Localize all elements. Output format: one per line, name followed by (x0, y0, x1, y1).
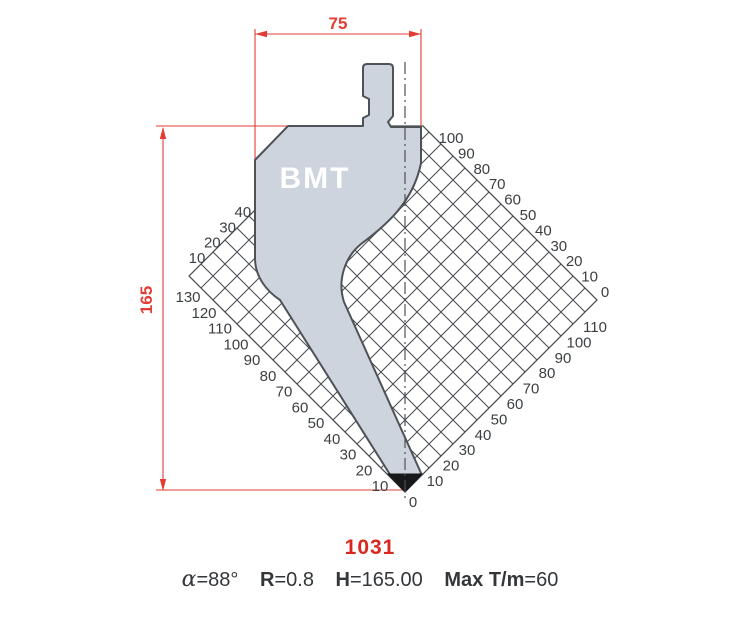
scale-label: 10 (581, 269, 598, 286)
scale-label: 40 (475, 427, 492, 444)
title-block: 1031 α=88° R=0.8 H=165.00 Max T/m=60 (0, 522, 740, 592)
scale-label: 100 (223, 336, 248, 353)
scale-label: 90 (458, 145, 475, 162)
scale-label: 60 (292, 399, 309, 416)
scale-label: 10 (427, 473, 444, 490)
scale-label: 20 (566, 253, 583, 270)
width-dimension-label: 75 (329, 14, 348, 33)
scale-label: 120 (191, 305, 216, 322)
scale-label: 110 (208, 321, 232, 338)
scale-label: 30 (550, 238, 567, 255)
scale-label: 70 (276, 384, 293, 401)
scale-label: 40 (535, 222, 552, 239)
spec-angle: α=88° (182, 569, 239, 591)
scale-label: 90 (555, 350, 572, 367)
scale-label: 90 (244, 352, 261, 369)
scale-label: 10 (189, 250, 206, 267)
scale-label: 50 (520, 207, 537, 224)
brand-label: BMT (280, 162, 351, 195)
punch-drawing-page: BMT 75 165 10203040130120110100908070605… (0, 0, 740, 618)
scale-label: 70 (489, 176, 506, 193)
scale-label: 50 (491, 411, 508, 428)
scale-label: 40 (324, 431, 341, 448)
spec-radius: R=0.8 (260, 569, 314, 591)
scale-label: 80 (260, 368, 277, 385)
scale-label: 30 (340, 447, 357, 464)
scale-label: 130 (175, 289, 200, 306)
scale-label: 0 (601, 284, 609, 301)
width-dimension: 75 (255, 14, 421, 37)
height-dimension-label: 165 (137, 286, 156, 314)
scale-label: 40 (235, 204, 252, 221)
part-number: 1031 (0, 536, 740, 560)
scale-label: 70 (523, 381, 540, 398)
scale-label: 80 (473, 161, 490, 178)
scale-label: 80 (539, 365, 556, 382)
scale-label: 10 (372, 478, 389, 495)
scale-label: 60 (504, 192, 521, 209)
scale-label: 60 (507, 396, 524, 413)
spec-height: H=165.00 (336, 569, 423, 591)
origin-label: 0 (409, 494, 417, 511)
spec-line: α=88° R=0.8 H=165.00 Max T/m=60 (0, 567, 740, 592)
scale-label: 20 (356, 462, 373, 479)
technical-drawing: BMT 75 165 10203040130120110100908070605… (0, 0, 740, 522)
scale-label: 50 (308, 415, 325, 432)
scale-label: 30 (219, 219, 236, 236)
scale-label: 20 (443, 458, 460, 475)
scale-label: 20 (204, 235, 221, 252)
spec-max-tonnage: Max T/m=60 (444, 569, 558, 591)
height-dimension: 165 (137, 127, 166, 491)
scale-label: 30 (459, 442, 476, 459)
